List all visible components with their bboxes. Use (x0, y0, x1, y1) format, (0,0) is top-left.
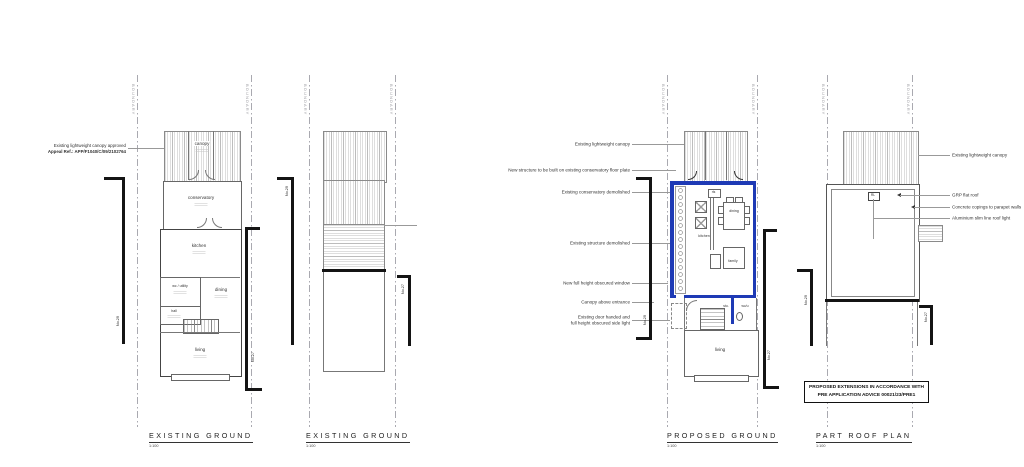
side-wall (384, 272, 385, 372)
boundary-label: BOUNDARY (245, 84, 250, 115)
room-dim-text (194, 355, 207, 359)
boundary-line (395, 75, 396, 427)
leader-line (632, 144, 684, 145)
annotation-canopy-entrance: Canopy above entrance (581, 300, 630, 305)
bay-window (171, 374, 230, 381)
chair (718, 217, 724, 225)
toilet (736, 312, 743, 321)
neighbor-wall (763, 386, 779, 389)
boundary-line (667, 75, 668, 427)
annotation-obscured-window: New full height obscured window (563, 281, 630, 286)
rooflight-label: rls (712, 190, 716, 194)
bay-window (694, 375, 749, 382)
plan-title: PROPOSED GROUND (667, 431, 778, 443)
canopy-roof-hatch (323, 131, 387, 183)
annotation-structure-demolished: Existing structure demolished (570, 241, 630, 246)
side-wall (756, 298, 757, 330)
side-wall (917, 302, 918, 346)
chair (726, 197, 734, 203)
side-wall (323, 272, 324, 372)
sofa (710, 254, 721, 269)
room-dim-text (196, 149, 209, 153)
note-box: PROPOSED EXTENSIONS IN ACCORDANCE WITH P… (804, 381, 929, 403)
annotation-rooflight: Aluminium slim line roof light (952, 216, 1010, 221)
neighbor-label-right: No.27 (401, 284, 405, 294)
annotation-copings: Concrete copings to parapet walls (952, 205, 1021, 210)
chair (718, 206, 724, 214)
rooflight-label: RL (871, 193, 875, 197)
boundary-line (137, 75, 138, 427)
plan-scale: 1:100 (306, 444, 316, 448)
room-label-dining: dining (728, 209, 740, 213)
chair (735, 197, 743, 203)
neighbor-wall (810, 269, 813, 346)
canopy-area (164, 131, 241, 182)
boundary-label: BOUNDARY (661, 84, 666, 115)
stairs (700, 308, 725, 330)
boundary-label: BOUNDARY (131, 84, 136, 115)
entrance-canopy-dashed (671, 303, 687, 329)
plan-scale: 1:100 (149, 444, 159, 448)
room-label-kitchen: kitchen (192, 243, 207, 248)
chair (744, 206, 750, 214)
room-label-wc-utility: wc / utility (172, 284, 188, 288)
kitchen-appliance (695, 217, 707, 229)
room-dim-text (174, 291, 187, 295)
boundary-label: BOUNDARY (906, 84, 911, 115)
kitchen-counter (713, 198, 714, 250)
plan-scale: 1:100 (816, 444, 826, 448)
neighbor-wall (247, 388, 262, 391)
room-dim-text (193, 251, 206, 255)
boundary-line (251, 75, 252, 427)
neighbor-wall (930, 305, 933, 345)
annotation-new-structure: New structure to be built on existing co… (508, 168, 630, 173)
new-wall-top (670, 181, 756, 185)
appeal-ref: Appeal Ref.: APP/F1040/C/09/2102764 (16, 149, 126, 155)
room-dim-text (195, 203, 208, 207)
room-label-living: living (715, 347, 725, 352)
plan-title: EXISTING GROUND (149, 431, 253, 443)
canopy-divider (726, 131, 727, 180)
neighbor-wall (649, 177, 652, 340)
leader-line (918, 155, 950, 156)
flat-roof-hatch (323, 224, 385, 272)
room-dim-text (168, 315, 181, 319)
plan-title: PART ROOF PLAN (816, 431, 912, 443)
leader-line (873, 218, 950, 219)
leader-line (384, 225, 417, 226)
boundary-label: BOUNDARY (821, 84, 826, 115)
living-room (684, 330, 759, 377)
annotation-canopy: Existing lightweight canopy (575, 142, 630, 147)
neighbor-wall (122, 177, 125, 344)
neighbor-label-right: No.27 (251, 352, 255, 362)
drawing-sheet: BOUNDARY BOUNDARY Existing lightweight c… (0, 0, 1024, 467)
annotation-door-handed-2: full height obscured side light (571, 321, 630, 326)
neighbor-label-left: No.29 (116, 316, 120, 326)
new-wall-bottom (684, 295, 756, 299)
door-arc (686, 300, 697, 311)
kitchen-appliance (695, 201, 707, 213)
canopy-approval-annotation: Existing lightweight canopy approved App… (16, 143, 126, 155)
annotation-grp-roof: GRP flat roof (952, 193, 978, 198)
note-line-2: PRE APPLICATION ADVICE 00021/23/PRE1 (809, 392, 924, 400)
leader-line (128, 148, 164, 149)
new-wall-wc (731, 298, 734, 324)
room-label-canopy: canopy (194, 141, 211, 146)
external-steps-hatch (918, 225, 943, 242)
boundary-label: BOUNDARY (389, 84, 394, 115)
leader-line (632, 170, 676, 171)
chair (744, 217, 750, 225)
neighbor-wall (763, 229, 766, 389)
neighbor-label-left: No.29 (285, 186, 289, 196)
neighbor-label-right: No.27 (767, 350, 771, 360)
neighbor-label-left: No.29 (643, 315, 647, 325)
boundary-line (309, 75, 310, 427)
neighbor-wall (247, 227, 260, 230)
leader-line (914, 207, 950, 208)
plan-scale: 1:100 (667, 444, 677, 448)
internal-wall (160, 332, 240, 333)
rear-wall (322, 269, 386, 272)
boundary-label: BOUNDARY (751, 84, 756, 115)
new-wall-bottom (670, 295, 676, 299)
room-label-kitchen: kitchen (698, 234, 709, 238)
room-label-conservatory: conservatory (188, 195, 214, 200)
rear-wall (825, 299, 919, 302)
room-label-family: family (727, 259, 738, 263)
room-label-study: stu. (723, 304, 728, 308)
room-dim-text (215, 295, 228, 299)
plan-title: EXISTING GROUND (306, 431, 410, 443)
new-wall-left (670, 181, 674, 298)
room-label-wc: wc/u (742, 304, 749, 308)
annotation-conservatory-demolished: Existing conservatory demolished (562, 190, 630, 195)
dining-table (723, 202, 745, 230)
neighbor-wall (291, 177, 294, 345)
leader-line (900, 195, 950, 196)
neighbor-wall (408, 275, 411, 346)
neighbor-wall (636, 337, 652, 340)
canopy-roof-hatch (843, 131, 919, 186)
boundary-label: BOUNDARY (303, 84, 308, 115)
leader-line (873, 199, 874, 239)
annotation-door-handed-1: Existing door handed and (578, 315, 630, 320)
neighbor-label-right: No.27 (924, 312, 928, 322)
kitchen-counter (710, 198, 711, 250)
family-table (723, 247, 745, 269)
demolished-wall-dots (675, 186, 686, 294)
neighbor-label-left: No.29 (804, 295, 808, 305)
room-label-hall: hall (171, 309, 177, 313)
front-wall (323, 371, 385, 372)
new-wall-right (753, 181, 757, 298)
note-line-1: PROPOSED EXTENSIONS IN ACCORDANCE WITH (809, 384, 924, 392)
room-label-dining: dining (215, 287, 227, 292)
room-label-living: living (195, 347, 205, 352)
side-wall (826, 302, 827, 346)
canopy-divider (705, 131, 706, 180)
annotation-canopy: Existing lightweight canopy (952, 153, 1007, 158)
conservatory-roof-hatch (323, 180, 385, 227)
neighbor-wall (245, 227, 248, 391)
